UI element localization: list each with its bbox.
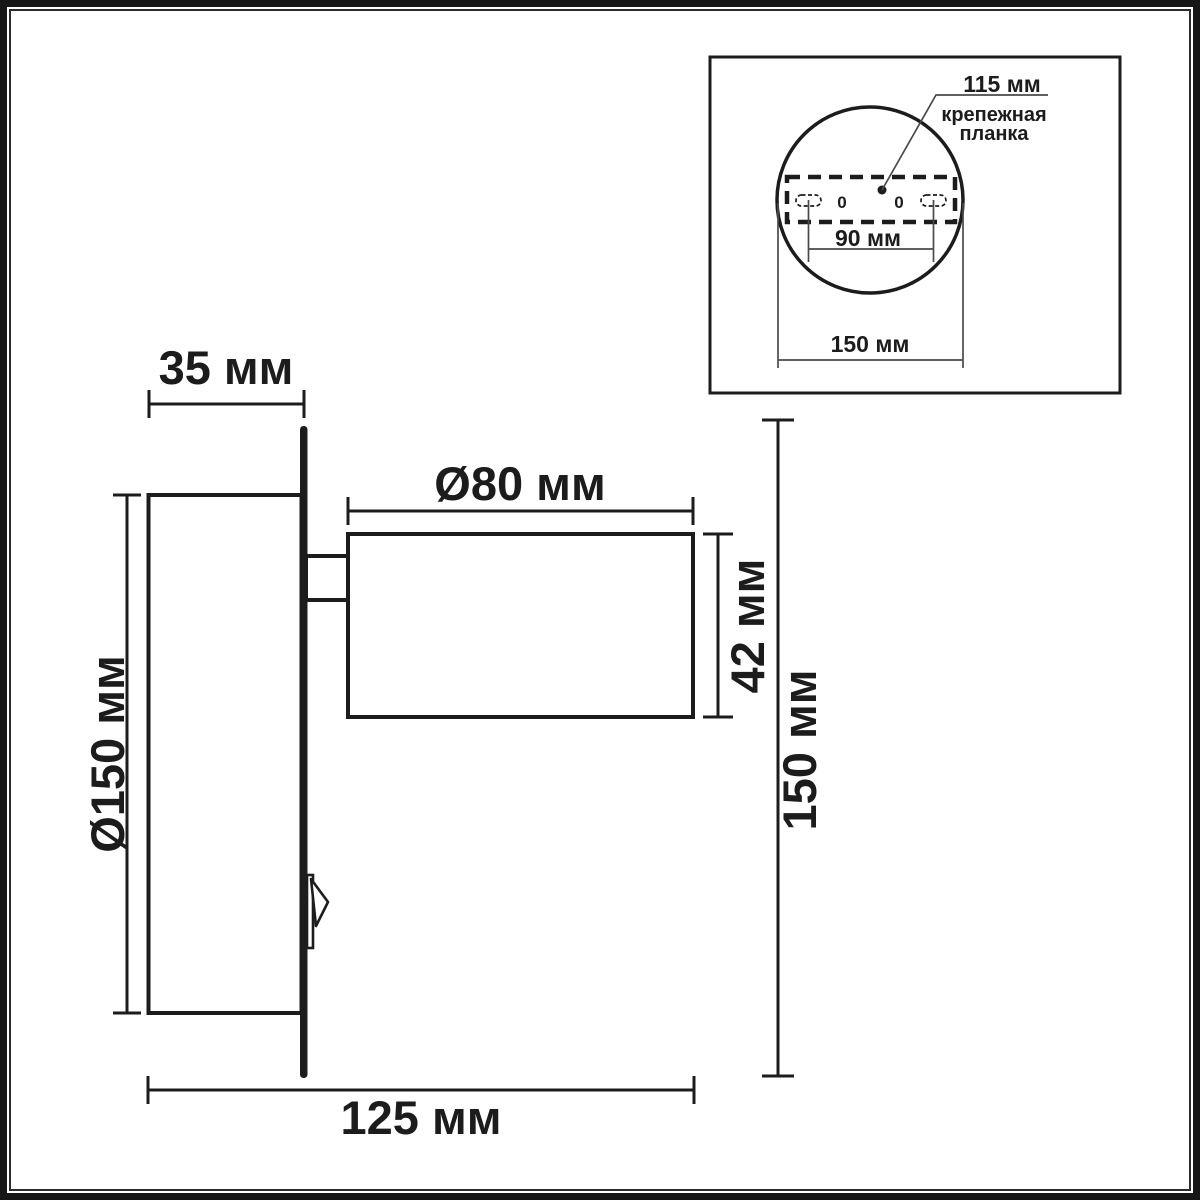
dimension-drawing: 35 мм Ø80 мм 42 мм Ø150 мм 150 мм 125 мм <box>0 0 1200 1200</box>
hole-mark-right: 0 <box>894 193 903 212</box>
wall-mount-bar <box>300 426 308 1078</box>
spot-head-cylinder <box>348 534 693 717</box>
label-overall-projection: 125 мм <box>340 1091 501 1144</box>
label-base-diameter: Ø150 мм <box>81 655 134 853</box>
label-plate-caption-line2: планка <box>959 123 1029 145</box>
label-hole-spacing: 90 мм <box>835 225 901 251</box>
label-inset-diameter: 150 мм <box>831 331 910 357</box>
drawing-page: 35 мм Ø80 мм 42 мм Ø150 мм 150 мм 125 мм <box>0 0 1200 1200</box>
base-plate-side <box>149 495 302 1013</box>
mounting-plate-inset <box>710 57 1120 393</box>
label-head-diameter: Ø80 мм <box>434 457 605 510</box>
swivel-arm <box>306 556 348 600</box>
label-overall-height: 150 мм <box>773 669 826 830</box>
label-head-height: 42 мм <box>721 559 774 694</box>
hole-mark-left: 0 <box>837 193 846 212</box>
dim-base-depth <box>149 390 304 418</box>
power-switch <box>307 875 328 948</box>
label-plate-width: 115 мм <box>963 71 1041 97</box>
label-base-depth: 35 мм <box>159 341 294 394</box>
